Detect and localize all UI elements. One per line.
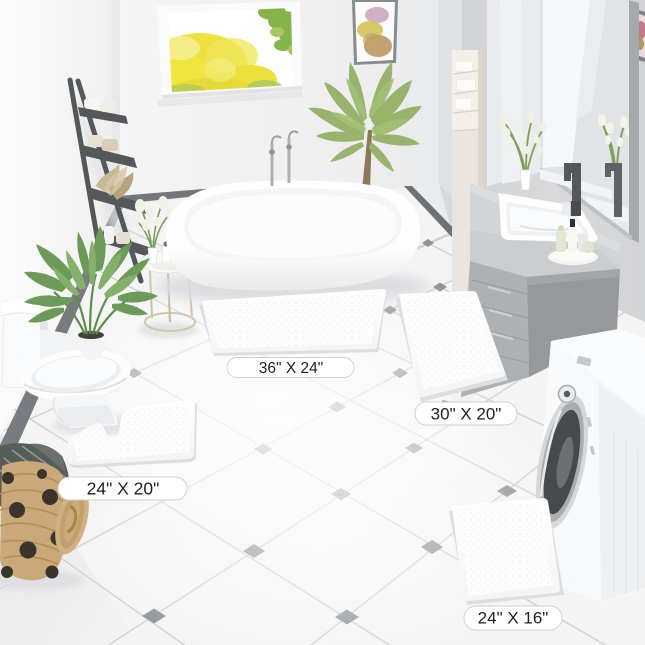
svg-text:36" X 24": 36" X 24" <box>259 360 323 377</box>
svg-text:30" X 20": 30" X 20" <box>431 405 502 424</box>
svg-text:24" X 20": 24" X 20" <box>87 479 160 499</box>
svg-text:24" X 16": 24" X 16" <box>478 609 549 628</box>
